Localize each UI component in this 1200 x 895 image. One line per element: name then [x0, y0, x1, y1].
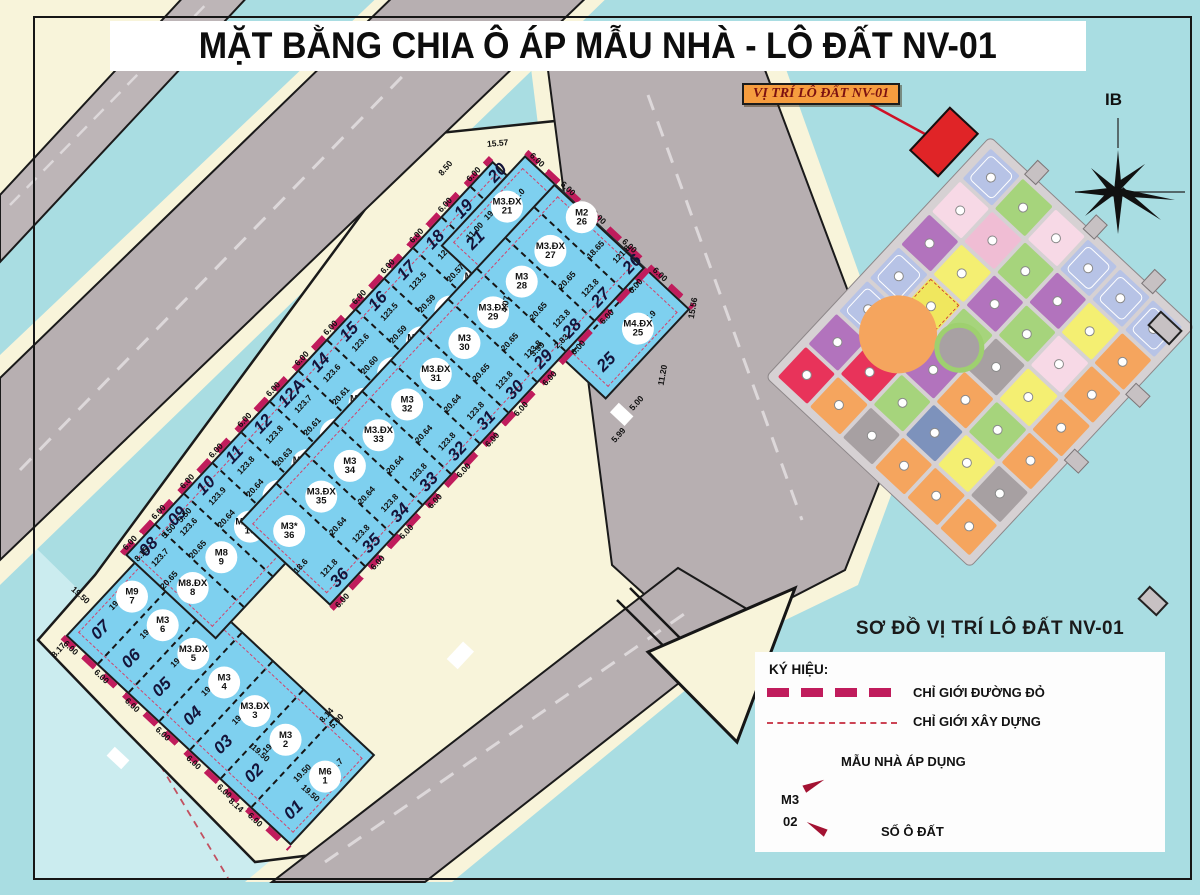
plot-number: 03: [210, 731, 238, 759]
compass-star-icon: [1075, 88, 1185, 268]
plot-depth-dim: 20.64: [355, 484, 377, 506]
plot-number: 02: [240, 760, 268, 788]
location-callout: VỊ TRÍ LÔ ĐẤT NV-01: [742, 83, 900, 105]
plot-depth-dim: 20.64: [384, 453, 406, 475]
plot-depth-dim: 18.6: [291, 556, 310, 575]
plot-depth-dim: 20.64: [413, 423, 435, 445]
dimension-label: 15.57: [487, 137, 509, 149]
plot-number: 06: [118, 645, 146, 673]
plot-depth-dim: 20.64: [441, 392, 463, 414]
setback-symbol: [767, 722, 897, 724]
compass-rose: IB: [1075, 88, 1185, 273]
title-bar: MẶT BẰNG CHIA Ô ÁP MẪU NHÀ - LÔ ĐẤT NV-0…: [110, 21, 1086, 71]
plot-label-badge: M334: [334, 450, 366, 482]
plot-label-badge: M3*36: [273, 515, 305, 547]
plot-number-arrow-icon: [804, 819, 827, 836]
plot-label-badge: M3.ĐX3: [239, 695, 271, 727]
plot-number-note: SỐ Ô ĐẤT: [881, 824, 944, 839]
plot-label-badge: M36: [147, 609, 179, 641]
map-subtitle: SƠ ĐỒ VỊ TRÍ LÔ ĐẤT NV-01: [790, 618, 1190, 640]
plot-label-badge: M3.ĐX35: [305, 480, 337, 512]
plot-label-badge: M3.ĐX27: [534, 235, 566, 267]
callout-text: VỊ TRÍ LÔ ĐẤT NV-01: [753, 86, 889, 101]
legend-symbols-label: KÝ HIỆU:: [769, 662, 828, 677]
plot-label-badge: M332: [391, 388, 423, 420]
plot-label-badge: M61: [309, 761, 341, 793]
plot-label-badge: M8.ĐX8: [176, 572, 208, 604]
plot-label-badge: M3.ĐX33: [362, 419, 394, 451]
plot-label-badge: M32: [270, 724, 302, 756]
plot-label-badge: M4.ĐX25: [622, 313, 654, 345]
model-note: MẪU NHÀ ÁP DỤNG: [841, 754, 966, 769]
plot-label-badge: M89: [205, 541, 237, 573]
plot-depth-dim: 20.65: [527, 300, 549, 322]
model-arrow-icon: [802, 775, 825, 792]
plot-number: 25: [593, 349, 621, 377]
model-example: M3: [781, 792, 799, 807]
plot-number: 07: [87, 616, 115, 644]
plot-depth-dim: 20.65: [556, 269, 578, 291]
plot-label-badge: M3.ĐX5: [177, 638, 209, 670]
red-boundary-label: CHỈ GIỚI ĐƯỜNG ĐỎ: [913, 685, 1045, 700]
plot-label-badge: M226: [566, 201, 598, 233]
legend-box: KÝ HIỆU: CHỈ GIỚI ĐƯỜNG ĐỎ CHỈ GIỚI XÂY …: [755, 652, 1165, 852]
red-boundary-symbol: [767, 688, 897, 697]
plot-number: 01: [280, 797, 308, 825]
setback-label: CHỈ GIỚI XÂY DỰNG: [913, 714, 1041, 729]
plot-number: 05: [148, 674, 176, 702]
plot-number-example: 02: [783, 814, 797, 829]
plot-label-badge: M3.ĐX31: [420, 358, 452, 390]
plot-label-badge: M97: [116, 581, 148, 613]
plot-label-badge: M330: [448, 327, 480, 359]
plot-number: 04: [179, 702, 207, 730]
compass-label: IB: [1105, 90, 1122, 110]
plot-label-badge: M3.ĐX21: [491, 191, 523, 223]
page-title: MẶT BẰNG CHIA Ô ÁP MẪU NHÀ - LÔ ĐẤT NV-0…: [199, 25, 997, 67]
plot-label-badge: M328: [506, 265, 538, 297]
plot-depth-dim: 20.65: [499, 331, 521, 353]
site-plan-drawing: 6.000719.50M976.000619.50M366.000519.50M…: [0, 0, 1200, 895]
plot-depth-dim: 18.65: [584, 238, 606, 260]
plot-depth-dim: 20.65: [470, 361, 492, 383]
plot-depth-dim: 20.64: [327, 515, 349, 537]
plot-label-badge: M34: [208, 667, 240, 699]
